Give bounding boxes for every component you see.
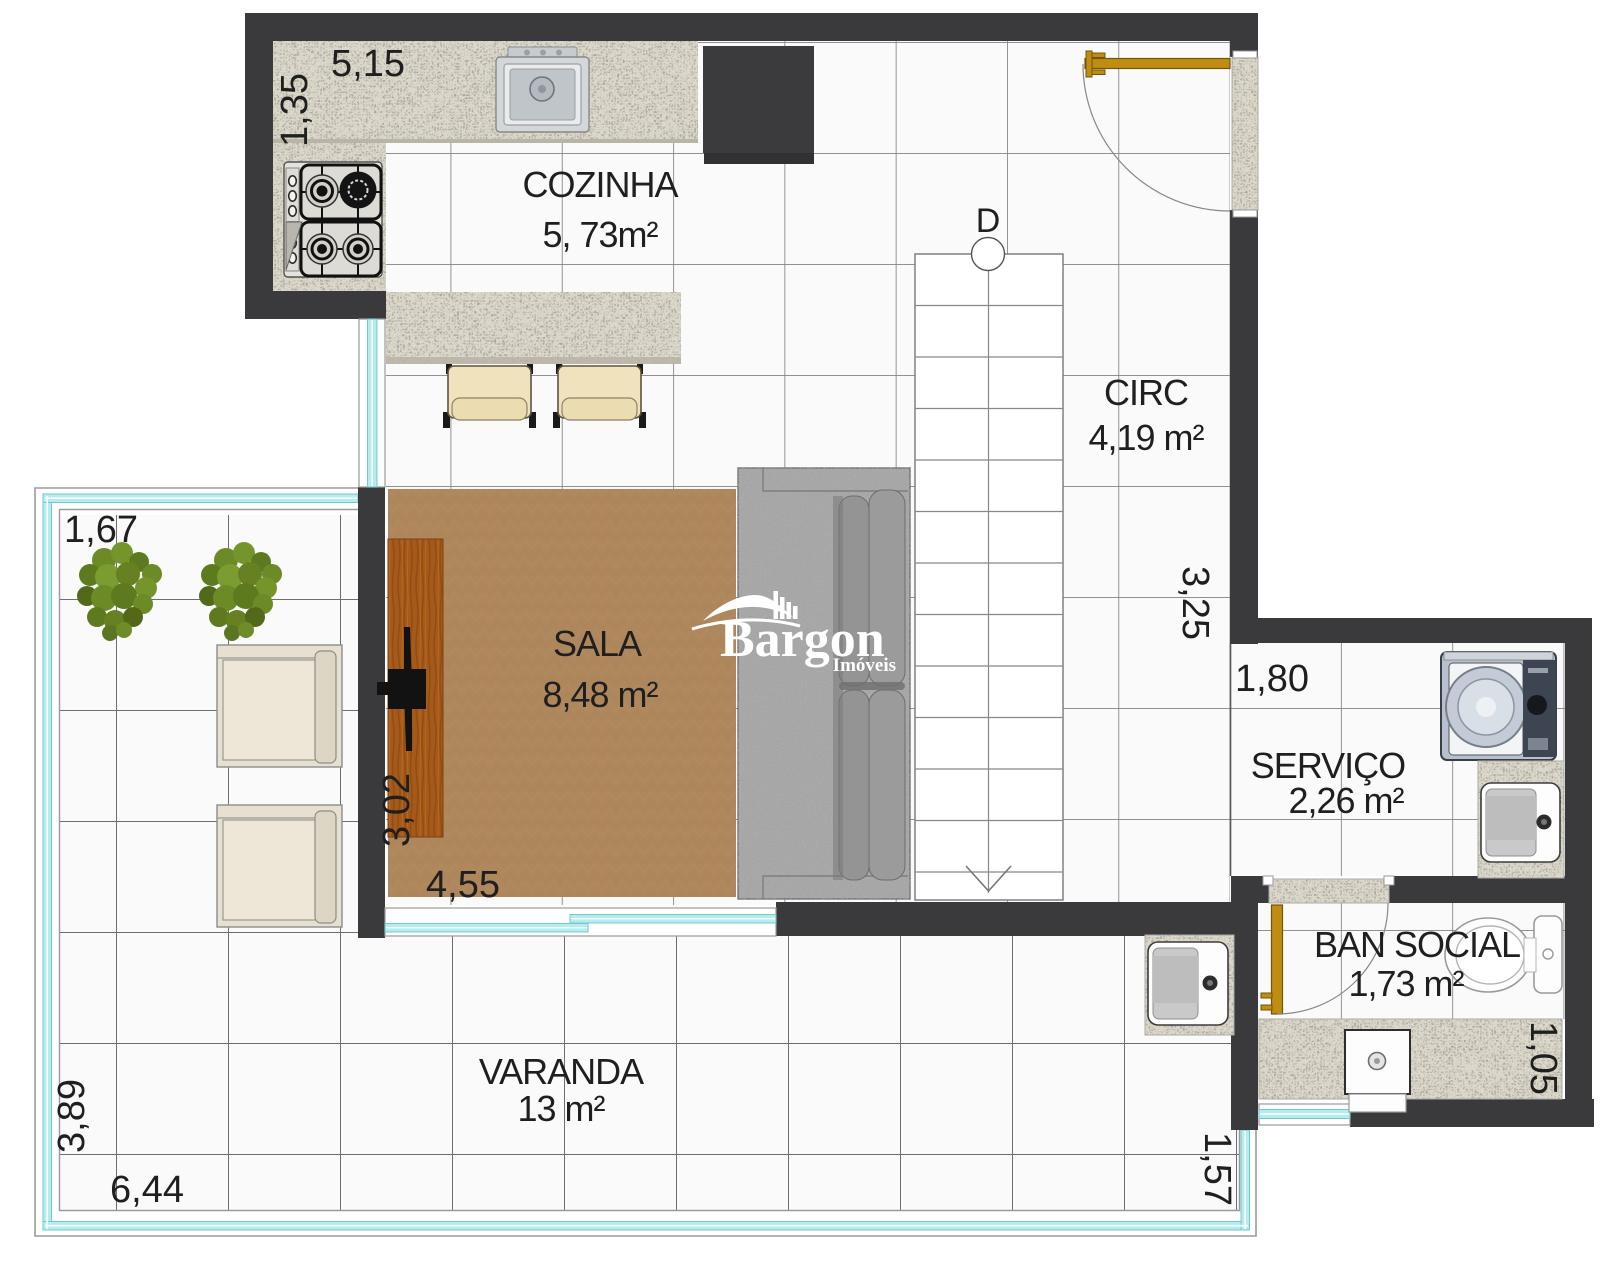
- svg-text:5,15: 5,15: [331, 43, 405, 85]
- svg-text:1,05: 1,05: [1522, 1021, 1564, 1095]
- svg-text:5, 73m²: 5, 73m²: [542, 214, 658, 255]
- svg-text:3,89: 3,89: [51, 1079, 93, 1153]
- svg-text:1,35: 1,35: [274, 73, 316, 147]
- svg-text:CIRC: CIRC: [1104, 372, 1188, 413]
- svg-text:1,57: 1,57: [1196, 1132, 1238, 1206]
- svg-text:VARANDA: VARANDA: [479, 1051, 644, 1092]
- svg-text:4,55: 4,55: [426, 864, 500, 906]
- svg-text:D: D: [976, 202, 1001, 240]
- svg-text:BAN SOCIAL: BAN SOCIAL: [1314, 924, 1520, 965]
- svg-text:1,67: 1,67: [64, 509, 138, 551]
- svg-text:3,02: 3,02: [376, 773, 418, 847]
- svg-text:2,26 m²: 2,26 m²: [1288, 780, 1404, 821]
- svg-text:3,25: 3,25: [1174, 566, 1216, 640]
- svg-text:COZINHA: COZINHA: [523, 164, 679, 205]
- svg-text:6,44: 6,44: [110, 1169, 184, 1211]
- svg-text:13 m²: 13 m²: [517, 1088, 605, 1129]
- svg-text:4,19 m²: 4,19 m²: [1088, 417, 1204, 458]
- svg-text:1,80: 1,80: [1235, 658, 1309, 700]
- svg-text:SALA: SALA: [553, 623, 642, 664]
- svg-text:8,48 m²: 8,48 m²: [542, 674, 658, 715]
- svg-text:1,73 m²: 1,73 m²: [1348, 963, 1464, 1004]
- svg-text:Imóveis: Imóveis: [833, 655, 896, 676]
